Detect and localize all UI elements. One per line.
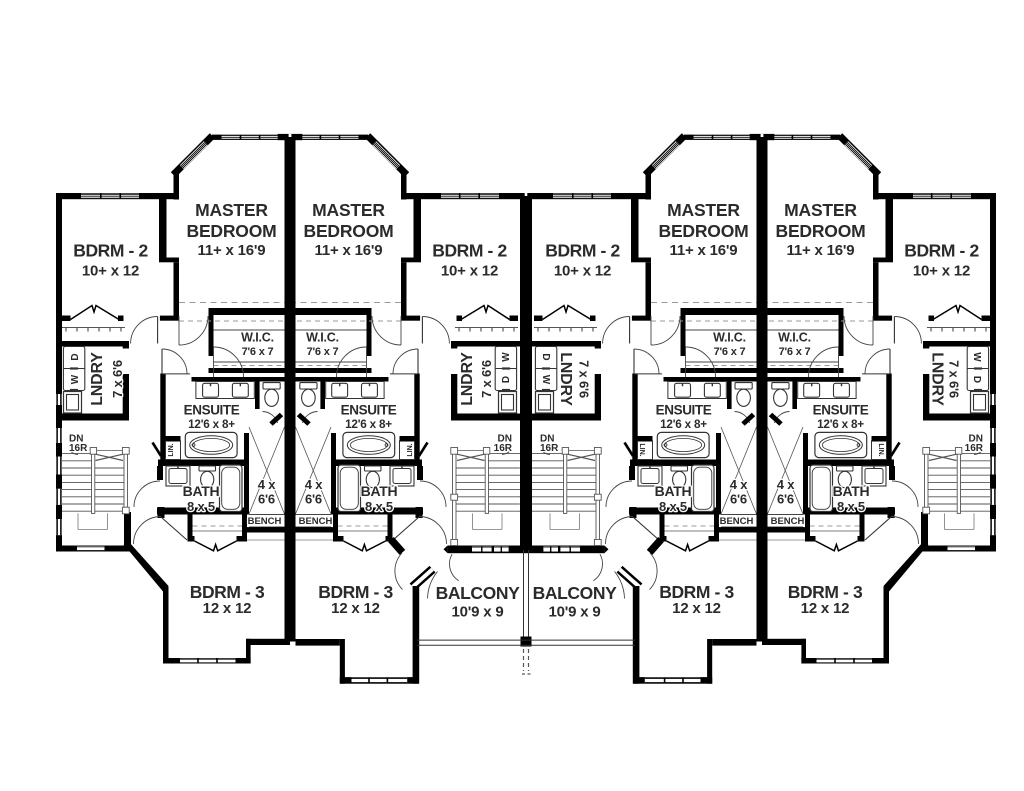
svg-text:LNDRY: LNDRY xyxy=(459,352,476,406)
svg-text:8 x 5: 8 x 5 xyxy=(187,499,215,514)
svg-text:7 x 6'6: 7 x 6'6 xyxy=(576,360,591,398)
svg-text:11+ x 16'9: 11+ x 16'9 xyxy=(787,242,855,259)
svg-text:D: D xyxy=(501,376,512,383)
svg-text:12'6 x 8+: 12'6 x 8+ xyxy=(817,418,864,431)
svg-text:6'6: 6'6 xyxy=(777,492,794,507)
svg-text:D: D xyxy=(70,353,81,360)
svg-text:W.I.C.: W.I.C. xyxy=(778,330,811,344)
svg-text:LNDRY: LNDRY xyxy=(557,352,574,406)
svg-text:BATH: BATH xyxy=(655,483,692,499)
svg-text:4 x: 4 x xyxy=(258,477,276,492)
svg-text:W.I.C.: W.I.C. xyxy=(713,330,746,344)
svg-text:BENCH: BENCH xyxy=(771,516,805,527)
svg-text:W: W xyxy=(501,352,512,362)
svg-text:7'6 x 7: 7'6 x 7 xyxy=(779,346,811,358)
svg-text:BATH: BATH xyxy=(361,483,398,499)
svg-text:12'6 x 8+: 12'6 x 8+ xyxy=(345,418,392,431)
svg-text:4 x: 4 x xyxy=(730,477,748,492)
svg-text:10'9 x 9: 10'9 x 9 xyxy=(548,604,600,621)
svg-text:W: W xyxy=(70,374,81,384)
svg-text:12 x 12: 12 x 12 xyxy=(203,600,252,617)
svg-text:ENSUITE: ENSUITE xyxy=(341,403,397,418)
svg-text:BENCH: BENCH xyxy=(720,516,754,527)
svg-text:BENCH: BENCH xyxy=(248,516,282,527)
svg-text:7 x 6'6: 7 x 6'6 xyxy=(947,360,962,398)
svg-text:W: W xyxy=(971,352,982,362)
svg-text:16R: 16R xyxy=(69,443,88,454)
svg-text:10+ x 12: 10+ x 12 xyxy=(441,262,498,279)
svg-text:16R: 16R xyxy=(540,443,559,454)
svg-text:D: D xyxy=(540,353,551,360)
svg-text:16R: 16R xyxy=(494,443,513,454)
svg-text:BEDROOM: BEDROOM xyxy=(187,221,277,241)
svg-text:BDRM - 2: BDRM - 2 xyxy=(73,240,148,260)
svg-text:10+ x 12: 10+ x 12 xyxy=(913,262,970,279)
svg-text:LIN.: LIN. xyxy=(877,443,884,456)
svg-text:BDRM - 3: BDRM - 3 xyxy=(659,582,734,602)
svg-text:12'6 x 8+: 12'6 x 8+ xyxy=(188,418,235,431)
svg-text:LNDRY: LNDRY xyxy=(929,352,946,406)
svg-text:D: D xyxy=(971,376,982,383)
svg-text:W.I.C.: W.I.C. xyxy=(241,330,274,344)
svg-text:BATH: BATH xyxy=(833,483,870,499)
svg-text:MASTER: MASTER xyxy=(784,200,857,220)
svg-text:7 x 6'6: 7 x 6'6 xyxy=(479,360,494,398)
svg-text:W.I.C.: W.I.C. xyxy=(306,330,339,344)
svg-text:MASTER: MASTER xyxy=(667,200,740,220)
svg-text:8 x 5: 8 x 5 xyxy=(659,499,687,514)
svg-text:7 x 6'6: 7 x 6'6 xyxy=(110,360,125,398)
svg-text:6'6: 6'6 xyxy=(730,492,747,507)
svg-text:LIN.: LIN. xyxy=(638,443,645,456)
svg-text:LIN.: LIN. xyxy=(407,443,414,456)
svg-text:7'6 x 7: 7'6 x 7 xyxy=(714,346,746,358)
svg-text:ENSUITE: ENSUITE xyxy=(656,403,712,418)
svg-text:LNDRY: LNDRY xyxy=(89,352,106,406)
svg-text:16R: 16R xyxy=(965,443,984,454)
svg-text:BDRM - 2: BDRM - 2 xyxy=(545,240,620,260)
svg-text:4 x: 4 x xyxy=(305,477,323,492)
svg-text:10'9 x 9: 10'9 x 9 xyxy=(451,604,503,621)
svg-text:MASTER: MASTER xyxy=(195,200,268,220)
svg-text:4 x: 4 x xyxy=(777,477,795,492)
svg-text:11+ x 16'9: 11+ x 16'9 xyxy=(198,242,266,259)
svg-text:MASTER: MASTER xyxy=(312,200,385,220)
svg-text:11+ x 16'9: 11+ x 16'9 xyxy=(315,242,383,259)
svg-text:11+ x 16'9: 11+ x 16'9 xyxy=(670,242,738,259)
svg-text:7'6 x 7: 7'6 x 7 xyxy=(307,346,339,358)
svg-text:8 x 5: 8 x 5 xyxy=(837,499,865,514)
svg-text:BDRM - 3: BDRM - 3 xyxy=(318,582,393,602)
svg-text:BDRM - 3: BDRM - 3 xyxy=(190,582,265,602)
svg-text:ENSUITE: ENSUITE xyxy=(813,403,869,418)
svg-text:BEDROOM: BEDROOM xyxy=(659,221,749,241)
svg-text:12 x 12: 12 x 12 xyxy=(672,600,721,617)
svg-text:12 x 12: 12 x 12 xyxy=(331,600,380,617)
svg-text:10+ x 12: 10+ x 12 xyxy=(554,262,611,279)
svg-text:BEDROOM: BEDROOM xyxy=(776,221,866,241)
svg-text:BATH: BATH xyxy=(183,483,220,499)
svg-text:12 x 12: 12 x 12 xyxy=(801,600,850,617)
svg-text:6'6: 6'6 xyxy=(305,492,322,507)
svg-text:10+ x 12: 10+ x 12 xyxy=(82,262,139,279)
svg-text:BDRM - 2: BDRM - 2 xyxy=(904,240,979,260)
svg-text:BENCH: BENCH xyxy=(299,516,333,527)
svg-text:ENSUITE: ENSUITE xyxy=(184,403,240,418)
svg-text:BALCONY: BALCONY xyxy=(533,583,617,603)
svg-text:LIN.: LIN. xyxy=(168,443,175,456)
svg-text:8 x 5: 8 x 5 xyxy=(365,499,393,514)
svg-text:12'6 x 8+: 12'6 x 8+ xyxy=(660,418,707,431)
svg-text:BDRM - 3: BDRM - 3 xyxy=(788,582,863,602)
svg-text:7'6 x 7: 7'6 x 7 xyxy=(242,346,274,358)
svg-text:BEDROOM: BEDROOM xyxy=(304,221,394,241)
svg-text:W: W xyxy=(540,375,551,385)
svg-text:BDRM - 2: BDRM - 2 xyxy=(432,240,507,260)
svg-text:BALCONY: BALCONY xyxy=(436,583,520,603)
svg-text:6'6: 6'6 xyxy=(258,492,275,507)
